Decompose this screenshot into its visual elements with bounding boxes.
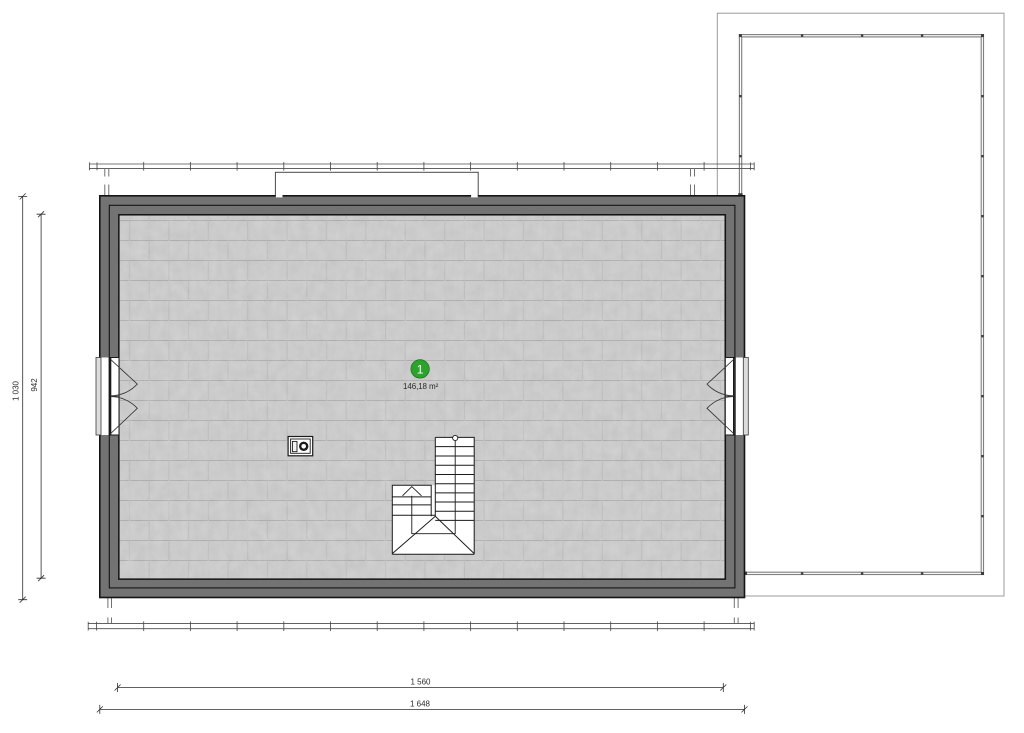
svg-text:1: 1 [417,362,424,376]
svg-text:1 560: 1 560 [410,678,431,687]
svg-text:1 648: 1 648 [410,700,431,709]
svg-text:1 030: 1 030 [12,380,21,401]
svg-text:146,18 m²: 146,18 m² [403,382,439,391]
svg-text:942: 942 [30,378,39,392]
